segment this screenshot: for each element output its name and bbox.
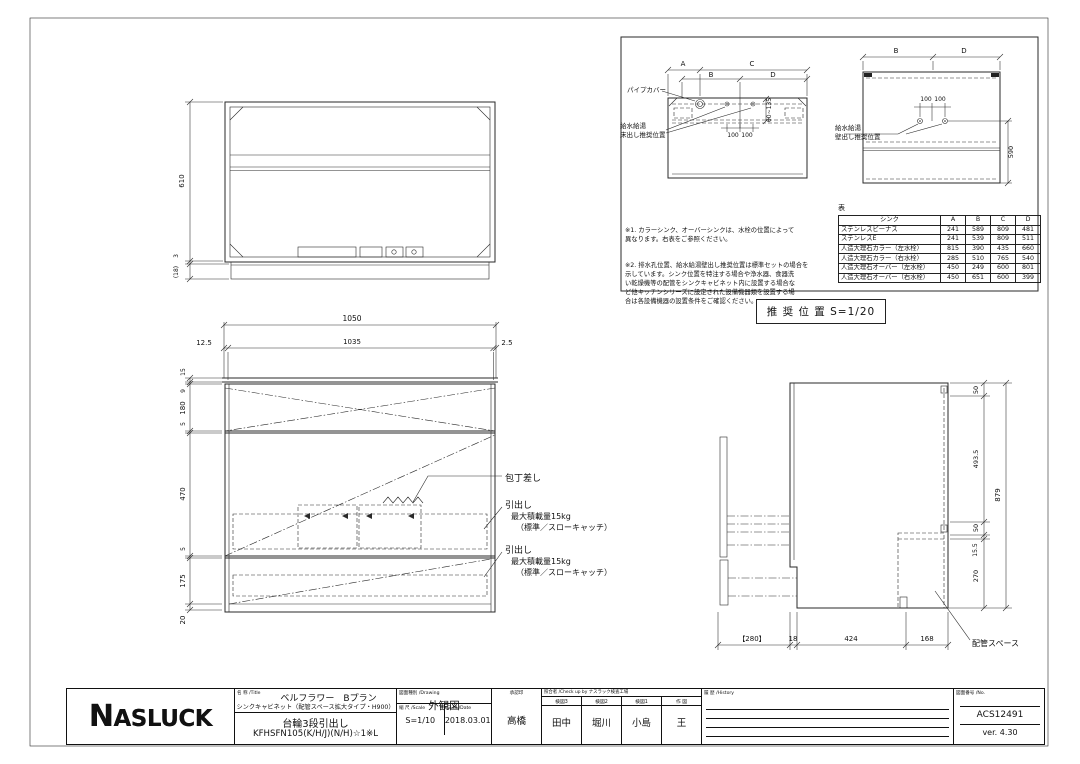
number-rule xyxy=(960,706,1040,707)
plan-dim-edge: 3 xyxy=(173,254,180,258)
front-dim-inner-width: 1035 xyxy=(343,338,361,346)
check3-name: 田中 xyxy=(542,715,581,729)
company-logo-cell: NASLUCK xyxy=(67,689,234,744)
drawing-number: ACS12491 xyxy=(954,710,1046,720)
side-dim-50b: 50 xyxy=(972,524,980,532)
wall-outlet-label-1: 給水給湯 xyxy=(835,123,862,132)
drawer2-label: 引出し xyxy=(505,544,532,556)
plan-dim-height: 610 xyxy=(178,174,186,187)
title-header: 名 称 /Title xyxy=(237,690,261,696)
sink-table-caption: 表 xyxy=(838,203,1041,213)
cell-a: 450 xyxy=(941,273,966,283)
col-B: B xyxy=(966,216,991,226)
check1-name: 小島 xyxy=(622,715,661,729)
check-col-1: 検図1 小島 xyxy=(621,697,661,744)
cell-a: 815 xyxy=(941,244,966,254)
drawer1-capacity: 最大積載量15kg xyxy=(511,511,571,521)
side-view: 50 493.5 50 15.5 270 879 【280】 18 424 16… xyxy=(715,380,1019,650)
cell-c: 600 xyxy=(991,273,1016,283)
side-dim-total-height: 879 xyxy=(994,488,1002,501)
recommend-caption-box: 推 奨 位 置 S=1/20 xyxy=(756,299,886,324)
cell-b: 390 xyxy=(966,244,991,254)
floor-dim-range: 60~135 xyxy=(766,98,773,122)
cell-name: 人造大理石カラー（左水栓） xyxy=(839,244,941,254)
drawer2-type: （標準／スローキャッチ） xyxy=(516,567,612,577)
approval-name: 高橋 xyxy=(492,713,541,727)
drawing-number-cell: 図面番号 /No. ACS12491 ver. 4.30 xyxy=(953,689,1046,744)
side-dim-168: 168 xyxy=(920,635,933,643)
date-value: 2018.03.01 xyxy=(445,716,492,725)
side-dim-280: 【280】 xyxy=(738,635,765,643)
drawer1-type: （標準／スローキャッチ） xyxy=(516,522,612,532)
cell-b: 510 xyxy=(966,254,991,264)
check-header: 照合者 /Check up by ナスラック検査工場 xyxy=(542,689,701,697)
cell-a: 285 xyxy=(941,254,966,264)
front-dim-9: 9 xyxy=(180,389,187,393)
date-cell: 日 付 /Date 2018.03.01 xyxy=(444,704,492,735)
approval-cell: 承認印 高橋 xyxy=(491,689,541,744)
history-line xyxy=(706,727,949,728)
front-dim-175: 175 xyxy=(179,574,187,587)
cell-name: 人造大理石オーバー（右水栓） xyxy=(839,273,941,283)
history-line xyxy=(706,736,949,737)
cell-b: 651 xyxy=(966,273,991,283)
cell-a: 241 xyxy=(941,225,966,235)
wall-dim-D: D xyxy=(961,47,966,55)
recommend-caption: 推 奨 位 置 S=1/20 xyxy=(767,304,875,319)
wall-dim-100b: 100 xyxy=(934,96,946,103)
knife-holder-label: 包丁差し xyxy=(505,472,541,484)
front-dim-total-width: 1050 xyxy=(342,314,361,323)
floor-outlet-label-1: 給水給湯 xyxy=(620,121,647,130)
table-row: 人造大理石オーバー（右水栓） 450 651 600 399 xyxy=(839,273,1041,283)
check1-header: 検図1 xyxy=(622,697,661,706)
cell-d: 511 xyxy=(1016,235,1041,245)
sink-table-section: 表 シンク A B C D ステンレスビーナス 241 589 809 481 … xyxy=(838,203,1041,283)
product-code: KFHSFN105(K/H/J)(N/H)☆1※L xyxy=(235,728,396,743)
front-dim-20: 20 xyxy=(179,616,187,625)
drawer1-label: 引出し xyxy=(505,499,532,511)
wall-dim-height: 590 xyxy=(1007,146,1015,158)
front-dim-5a: 5 xyxy=(180,422,187,426)
cell-a: 450 xyxy=(941,263,966,273)
front-view: 1050 12.5 1035 2.5 15 9 180 5 470 5 175 … xyxy=(179,314,612,624)
cell-name: 人造大理石オーバー（左水栓） xyxy=(839,263,941,273)
cell-c: 600 xyxy=(991,263,1016,273)
cell-c: 765 xyxy=(991,254,1016,264)
sink-table: シンク A B C D ステンレスビーナス 241 589 809 481 ステ… xyxy=(838,215,1041,283)
recommend-floor-view: パイプカバー 給水給湯 床出し推奨位置 A C B D 100 100 60~1… xyxy=(620,60,810,178)
check-cell: 照合者 /Check up by ナスラック検査工場 検図3 田中 検図2 堀川… xyxy=(541,689,701,744)
check-col-draw: 作 図 王 xyxy=(661,697,701,744)
number-rule xyxy=(960,724,1040,725)
title-block: NASLUCK 名 称 /Title ベルフラワー Bプラン シンクキャビネット… xyxy=(66,688,1045,745)
cell-name: ステンレスビーナス xyxy=(839,225,941,235)
cell-name: ステンレスE xyxy=(839,235,941,245)
cell-name: 人造大理石カラー（右水栓） xyxy=(839,254,941,264)
recommend-wall-view: 給水給湯 壁出し推奨位置 B D 100 100 590 xyxy=(835,47,1015,186)
side-dim-424: 424 xyxy=(844,635,858,643)
product-type: 台輪3段引出し xyxy=(235,713,396,728)
cell-d: 660 xyxy=(1016,244,1041,254)
product-subname: シンクキャビネット（配管スペース拡大タイプ・H900） xyxy=(235,702,396,713)
floor-dim-100b: 100 xyxy=(741,132,753,139)
table-header-row: シンク A B C D xyxy=(839,216,1041,226)
drawing-type: 外観図 xyxy=(397,689,491,704)
col-C: C xyxy=(991,216,1016,226)
col-D: D xyxy=(1016,216,1041,226)
front-dim-left-margin: 12.5 xyxy=(196,339,212,347)
cell-a: 241 xyxy=(941,235,966,245)
front-dim-5b: 5 xyxy=(180,547,187,551)
nasluck-logo: NASLUCK xyxy=(89,699,212,734)
note-1: ※1. カラーシンク、オーバーシンクは、水栓の位置によって 異なります。右表をご… xyxy=(625,226,837,244)
drafter-header: 作 図 xyxy=(662,697,701,706)
history-cell: 履 歴 /History xyxy=(701,689,953,744)
history-header: 履 歴 /History xyxy=(704,690,734,696)
plan-dim-base: (18) xyxy=(173,266,180,278)
col-sink: シンク xyxy=(839,216,941,226)
side-dim-155: 15.5 xyxy=(972,543,979,557)
drawing-canvas: 610 3 (18) 1050 12.5 1035 2.5 15 9 180 5… xyxy=(0,0,1080,764)
cell-d: 481 xyxy=(1016,225,1041,235)
wall-dim-B: B xyxy=(894,47,899,55)
cell-b: 249 xyxy=(966,263,991,273)
floor-dim-C: C xyxy=(750,60,755,68)
drawer2-capacity: 最大積載量15kg xyxy=(511,556,571,566)
floor-dim-D: D xyxy=(770,71,775,79)
check-col-3: 検図3 田中 xyxy=(542,697,581,744)
floor-outlet-label-2: 床出し推奨位置 xyxy=(620,130,666,139)
piping-space-label: 配管スペース xyxy=(972,638,1019,648)
drawing-version: ver. 4.30 xyxy=(954,728,1046,737)
check-col-2: 検図2 堀川 xyxy=(581,697,621,744)
table-row: 人造大理石オーバー（左水栓） 450 249 600 801 xyxy=(839,263,1041,273)
table-row: ステンレスE 241 539 809 511 xyxy=(839,235,1041,245)
cell-b: 589 xyxy=(966,225,991,235)
table-row: ステンレスビーナス 241 589 809 481 xyxy=(839,225,1041,235)
check2-header: 検図2 xyxy=(582,697,621,706)
cell-c: 809 xyxy=(991,225,1016,235)
date-header: 日 付 /Date xyxy=(447,705,472,711)
scale-header: 縮 尺 /Scale xyxy=(399,705,425,711)
pipe-cover-label: パイプカバー xyxy=(627,86,666,94)
side-dim-493: 493.5 xyxy=(972,450,980,469)
cell-d: 399 xyxy=(1016,273,1041,283)
table-row: 人造大理石カラー（右水栓） 285 510 765 540 xyxy=(839,254,1041,264)
cell-c: 809 xyxy=(991,235,1016,245)
table-row: 人造大理石カラー（左水栓） 815 390 435 660 xyxy=(839,244,1041,254)
knife-holder-zigzag xyxy=(383,497,423,503)
side-dim-18: 18 xyxy=(789,635,798,643)
history-line xyxy=(706,709,949,710)
side-dim-50a: 50 xyxy=(972,386,980,394)
scale-value: S=1/10 xyxy=(397,716,444,725)
floor-dim-100a: 100 xyxy=(727,132,739,139)
scale-cell: 縮 尺 /Scale S=1/10 xyxy=(397,704,444,735)
drafter-name: 王 xyxy=(662,715,701,729)
front-dim-180: 180 xyxy=(179,401,187,414)
col-A: A xyxy=(941,216,966,226)
wall-outlet-label-2: 壁出し推奨位置 xyxy=(835,132,881,141)
front-dim-15: 15 xyxy=(180,368,187,376)
check2-name: 堀川 xyxy=(582,715,621,729)
plan-view: 610 3 (18) xyxy=(173,99,495,282)
wall-dim-100a: 100 xyxy=(920,96,932,103)
title-cell: 名 称 /Title ベルフラワー Bプラン シンクキャビネット（配管スペース拡… xyxy=(234,689,396,744)
front-dim-right-margin: 2.5 xyxy=(501,339,512,347)
sheet-border xyxy=(30,18,1048,746)
check3-header: 検図3 xyxy=(542,697,581,706)
floor-dim-B: B xyxy=(709,71,714,79)
number-header: 図面番号 /No. xyxy=(956,690,985,696)
approval-header: 承認印 xyxy=(510,690,524,696)
cell-b: 539 xyxy=(966,235,991,245)
side-dim-270: 270 xyxy=(972,570,980,582)
cell-c: 435 xyxy=(991,244,1016,254)
cell-d: 540 xyxy=(1016,254,1041,264)
cell-d: 801 xyxy=(1016,263,1041,273)
floor-dim-A: A xyxy=(681,60,686,68)
front-dim-470: 470 xyxy=(179,487,187,500)
drawing-sheet: 610 3 (18) 1050 12.5 1035 2.5 15 9 180 5… xyxy=(0,0,1080,764)
history-line xyxy=(706,718,949,719)
drawing-type-cell: 図面種別 /Drawing 外観図 縮 尺 /Scale S=1/10 日 付 … xyxy=(396,689,491,744)
